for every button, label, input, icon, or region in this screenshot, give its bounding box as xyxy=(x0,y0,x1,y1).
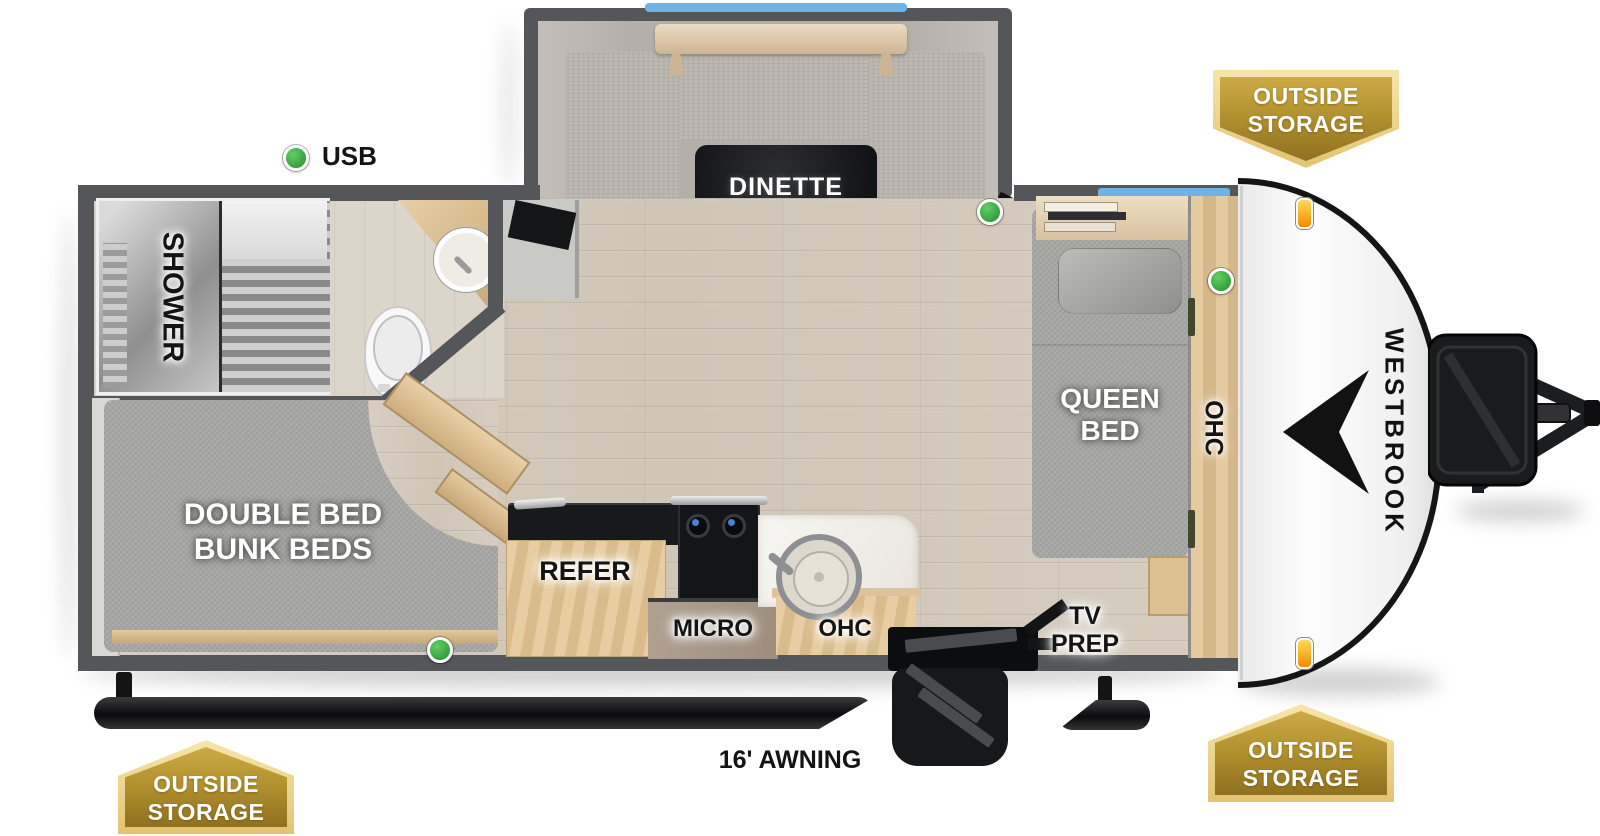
badge-line2: STORAGE xyxy=(1208,764,1394,792)
book-1 xyxy=(1044,202,1118,212)
ohc-handle-lower xyxy=(1188,510,1195,548)
tv-prep-line2: PREP xyxy=(1040,630,1130,658)
queen-label-line1: QUEEN xyxy=(1032,383,1188,415)
sink-drain xyxy=(814,572,824,582)
micro-label: MICRO xyxy=(655,616,771,643)
hitch-assembly xyxy=(1428,315,1600,527)
brand-arrow-icon xyxy=(1283,370,1369,494)
refer-label: REFER xyxy=(515,556,655,586)
usb-label: USB xyxy=(322,142,402,171)
usb-indicator-dot-bedroom xyxy=(1208,268,1234,294)
badge-line1: OUTSIDE xyxy=(1213,82,1399,110)
burner-left-flame xyxy=(692,519,699,526)
ohc-handle-upper xyxy=(1188,298,1195,336)
cap-seam xyxy=(1240,186,1243,680)
bedroom-ohc-label: OHC xyxy=(1199,400,1228,456)
outside-storage-badge-bottom-right: OUTSIDE STORAGE xyxy=(1208,704,1394,802)
marker-light-bottom xyxy=(1296,638,1313,669)
queen-label: QUEEN BED xyxy=(1032,383,1188,447)
bath-wall-right xyxy=(488,196,503,312)
kitchen-counter-black xyxy=(508,505,680,545)
outside-storage-badge-bottom-left: OUTSIDE STORAGE xyxy=(118,740,294,834)
badge-line1: OUTSIDE xyxy=(118,770,294,798)
stove xyxy=(678,503,760,601)
tv-prep-label: TV PREP xyxy=(1040,602,1130,658)
floorplan-canvas: DINETTE SHOWER DOUBLE BED BUNK BED xyxy=(0,0,1600,836)
badge-line2: STORAGE xyxy=(1213,110,1399,138)
usb-indicator-dot-dinette xyxy=(977,199,1003,225)
badge-text: OUTSIDE STORAGE xyxy=(1213,82,1399,138)
awning-tube-right xyxy=(1058,700,1150,730)
burner-right xyxy=(722,514,746,538)
shower-unit xyxy=(96,198,330,395)
badge-text: OUTSIDE STORAGE xyxy=(118,770,294,826)
bunk-label: DOUBLE BED BUNK BEDS xyxy=(148,498,418,567)
usb-indicator-dot-callout xyxy=(283,145,309,171)
bunk-label-line1: DOUBLE BED xyxy=(148,498,418,533)
tv-prep-line1: TV xyxy=(1040,602,1130,630)
shower-door-glass xyxy=(222,201,327,259)
queen-blanket-seam xyxy=(1032,344,1188,346)
marker-light-top xyxy=(1296,198,1313,229)
badge-line2: STORAGE xyxy=(118,798,294,826)
outside-storage-badge-top-right: OUTSIDE STORAGE xyxy=(1213,70,1399,168)
bunk-label-line2: BUNK BEDS xyxy=(148,533,418,568)
badge-line1: OUTSIDE xyxy=(1208,736,1394,764)
kitchen-ohc-label: OHC xyxy=(790,616,900,643)
shower-louver-left xyxy=(103,243,127,388)
dinette-valance xyxy=(655,24,907,54)
awning-bracket-right xyxy=(1098,676,1112,704)
kitchen-sink xyxy=(776,534,862,620)
burner-left xyxy=(686,514,710,538)
slideout-shadow xyxy=(500,20,518,190)
book-2 xyxy=(1048,212,1126,220)
usb-indicator-dot-bunk xyxy=(427,637,453,663)
awning-tube-left xyxy=(94,697,874,729)
shower-label: SHOWER xyxy=(156,232,189,363)
awning-label: 16' AWNING xyxy=(690,746,890,774)
brand-logo-text: WESTBROOK xyxy=(1379,328,1410,536)
slideout-window xyxy=(645,3,907,12)
burner-right-flame xyxy=(728,519,735,526)
queen-pillow xyxy=(1058,248,1182,314)
queen-label-line2: BED xyxy=(1032,415,1188,447)
rear-wall-shadow xyxy=(58,210,80,660)
book-3 xyxy=(1044,222,1116,232)
badge-text: OUTSIDE STORAGE xyxy=(1208,736,1394,792)
stove-handle xyxy=(670,496,768,505)
